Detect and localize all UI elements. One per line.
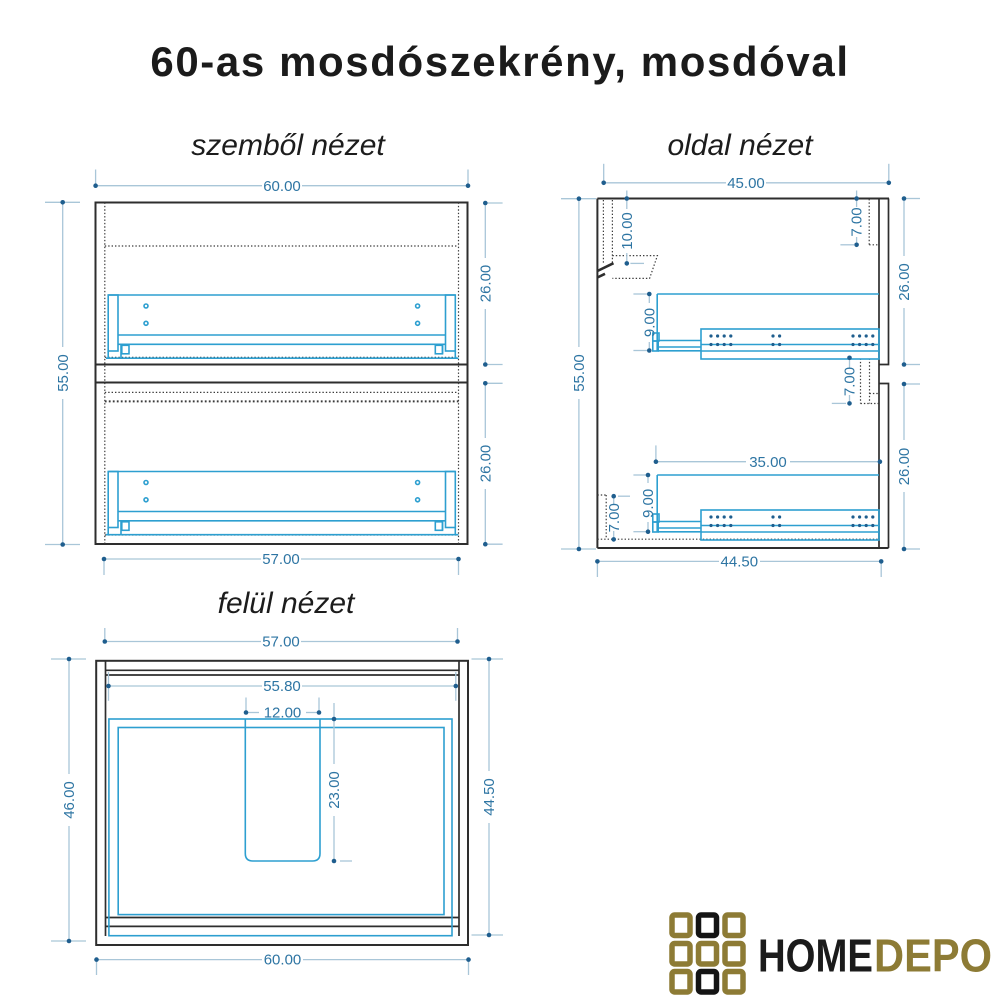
svg-text:26.00: 26.00	[896, 448, 913, 486]
svg-text:felül nézet: felül nézet	[218, 587, 356, 620]
svg-text:60.00: 60.00	[264, 952, 302, 969]
svg-text:26.00: 26.00	[896, 263, 913, 301]
svg-text:10.00: 10.00	[619, 212, 636, 250]
svg-text:26.00: 26.00	[477, 445, 494, 483]
svg-text:7.00: 7.00	[849, 207, 866, 236]
svg-text:9.00: 9.00	[640, 489, 657, 518]
svg-text:60-as mosdószekrény, mosdóval: 60-as mosdószekrény, mosdóval	[150, 38, 849, 85]
svg-text:57.00: 57.00	[262, 551, 300, 568]
svg-text:7.00: 7.00	[842, 367, 859, 396]
svg-text:55.80: 55.80	[263, 678, 301, 695]
svg-text:55.00: 55.00	[571, 354, 588, 392]
svg-text:60.00: 60.00	[263, 178, 301, 195]
svg-text:12.00: 12.00	[264, 705, 302, 722]
svg-text:DEPO: DEPO	[874, 930, 992, 982]
svg-text:23.00: 23.00	[326, 771, 343, 809]
svg-text:oldal nézet: oldal nézet	[667, 129, 814, 162]
svg-text:44.50: 44.50	[481, 778, 498, 816]
svg-text:HOME: HOME	[758, 930, 873, 982]
svg-text:45.00: 45.00	[727, 175, 765, 192]
svg-text:9.00: 9.00	[641, 308, 658, 337]
svg-text:7.00: 7.00	[606, 503, 623, 532]
svg-text:35.00: 35.00	[749, 454, 787, 471]
svg-text:szemből nézet: szemből nézet	[191, 129, 386, 162]
svg-text:55.00: 55.00	[55, 354, 72, 392]
svg-text:44.50: 44.50	[721, 554, 759, 571]
svg-text:26.00: 26.00	[477, 265, 494, 303]
svg-text:46.00: 46.00	[61, 781, 78, 819]
svg-text:57.00: 57.00	[262, 634, 300, 651]
